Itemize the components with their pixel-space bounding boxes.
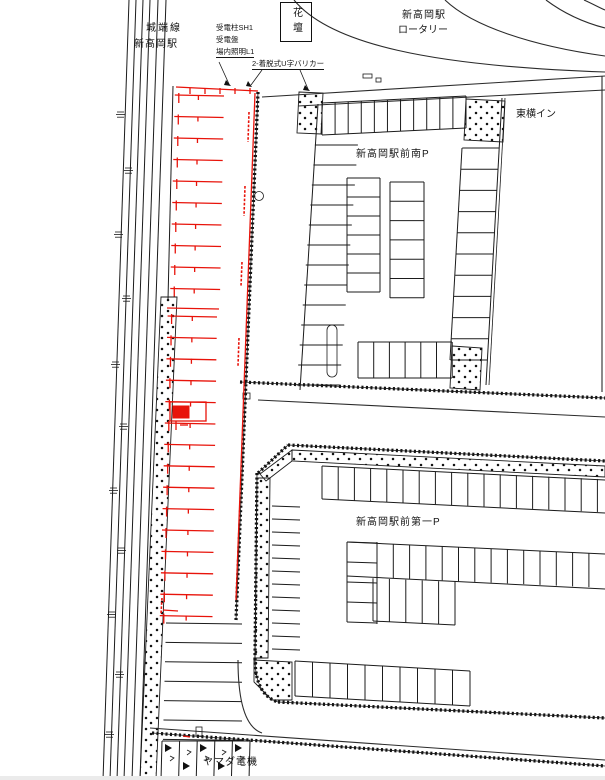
south-parking-label: 新高岡駅前南P <box>356 149 430 161</box>
site-plan-drawing <box>0 0 605 780</box>
site-plan: 城端線 新高岡駅 新高岡駅 ロータリー 花壇 受電柱SH1 受電盤 場内照明L1… <box>0 0 605 780</box>
equipment-note-line1: 受電柱SH1 <box>216 24 253 33</box>
flower-bed-box: 花壇 <box>280 2 312 42</box>
bollard-note: 2-着脱式U字バリカー <box>252 60 324 70</box>
first-parking-label: 新高岡駅前第一P <box>356 517 441 529</box>
flower-bed-label: 花壇 <box>289 7 304 37</box>
rotary-label-line1: 新高岡駅 <box>402 10 446 22</box>
railway-line-label: 城端線 <box>146 23 182 35</box>
rotary-label-line2: ロータリー <box>398 25 448 37</box>
equipment-note-line2: 受電盤 <box>216 36 239 45</box>
railway-station-label: 新高岡駅 <box>134 39 178 51</box>
equipment-note-line3: 場内照明L1 <box>216 48 254 58</box>
hotel-label: 東横イン <box>516 109 556 121</box>
yamada-label: ヤマダ電機 <box>203 757 258 769</box>
